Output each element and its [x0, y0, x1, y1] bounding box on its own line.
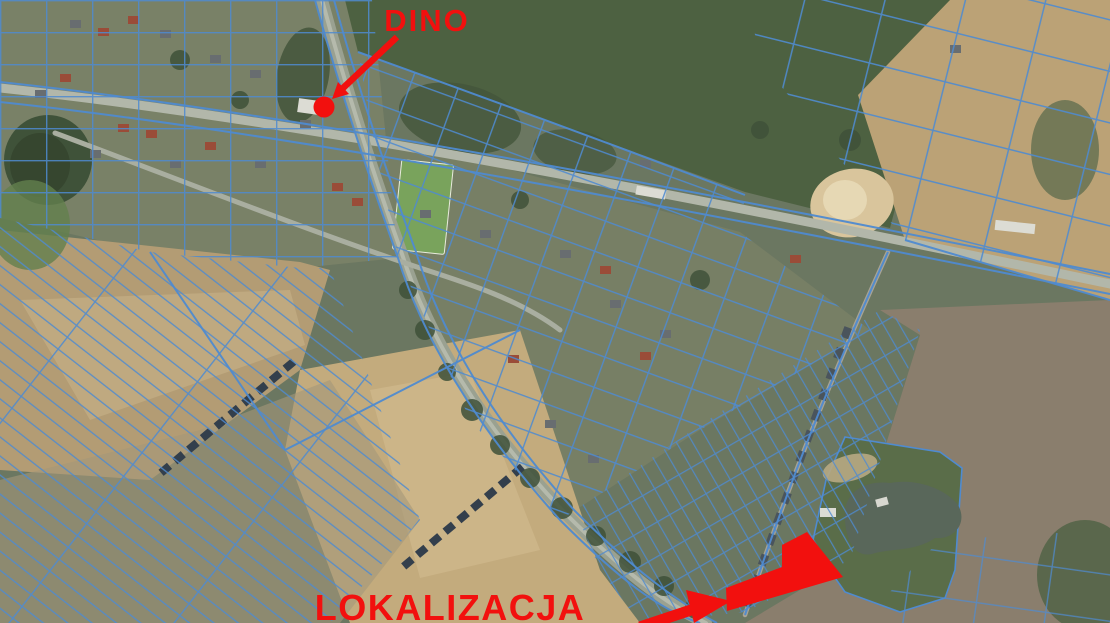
dino-location-dot — [314, 97, 335, 118]
map-canvas: DINO LOKALIZACJA — [0, 0, 1110, 623]
lokalizacja-label: LOKALIZACJA — [315, 587, 586, 623]
dino-label: DINO — [384, 3, 470, 38]
satellite-map: DINO LOKALIZACJA — [0, 0, 1110, 623]
